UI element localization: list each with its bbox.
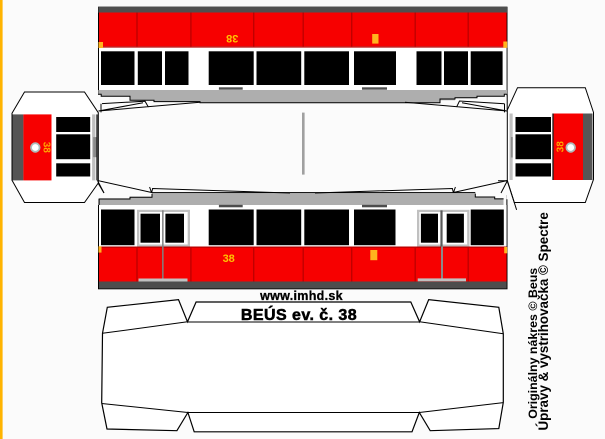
svg-text:38: 38 (223, 253, 235, 265)
svg-text:38: 38 (40, 142, 51, 154)
svg-text:BEÚS ev. č. 38: BEÚS ev. č. 38 (241, 305, 357, 324)
svg-text:38: 38 (555, 141, 566, 153)
svg-text:38: 38 (226, 32, 238, 44)
svg-text:Úpravy & vystrihovačka © Spect: Úpravy & vystrihovačka © Spectre (536, 212, 551, 430)
svg-text:www.imhd.sk: www.imhd.sk (259, 289, 343, 303)
